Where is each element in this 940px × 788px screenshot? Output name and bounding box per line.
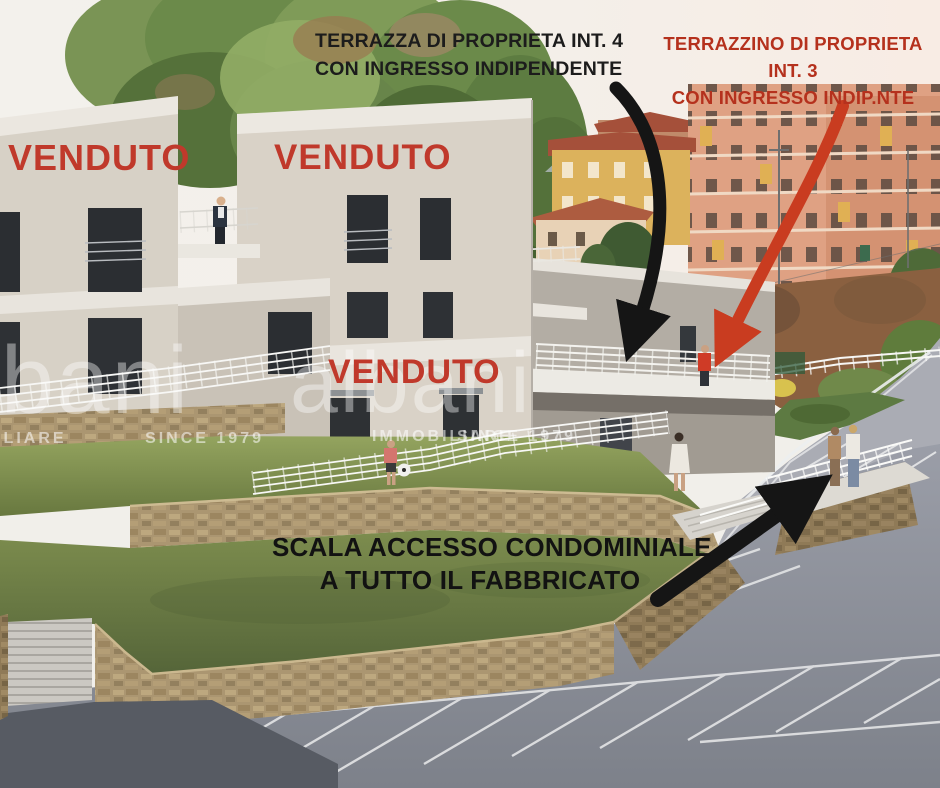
property-render-image: albani IMMOBILIARE SINCE 1979 albani IMM… xyxy=(0,0,940,788)
annotation-scala-line1: SCALA ACCESSO CONDOMINIALE xyxy=(272,531,688,564)
annotation-terrazza-line1: TERRAZZA DI PROPRIETA INT. 4 xyxy=(315,27,611,55)
venduto-label-top-left: VENDUTO xyxy=(8,140,190,176)
annotation-terrazzino: TERRAZZINO DI PROPRIETA INT. 3 CON INGRE… xyxy=(658,30,928,111)
garage-door xyxy=(6,618,92,706)
annotation-terrazzino-line3: CON INGRESSO INDIP.NTE xyxy=(658,84,928,111)
annotation-terrazzino-line2: INT. 3 xyxy=(658,57,928,84)
annotation-terrazza-line2: CON INGRESSO INDIPENDENTE xyxy=(315,55,611,83)
annotation-terrazza: TERRAZZA DI PROPRIETA INT. 4 CON INGRESS… xyxy=(315,27,611,83)
venduto-label-top-center: VENDUTO xyxy=(274,140,452,175)
render-scene xyxy=(0,0,940,788)
annotation-scala-line2: A TUTTO IL FABBRICATO xyxy=(272,564,688,597)
venduto-label-lower: VENDUTO xyxy=(328,355,501,389)
annotation-scala: SCALA ACCESSO CONDOMINIALE A TUTTO IL FA… xyxy=(272,531,688,597)
annotation-terrazzino-line1: TERRAZZINO DI PROPRIETA xyxy=(658,30,928,57)
